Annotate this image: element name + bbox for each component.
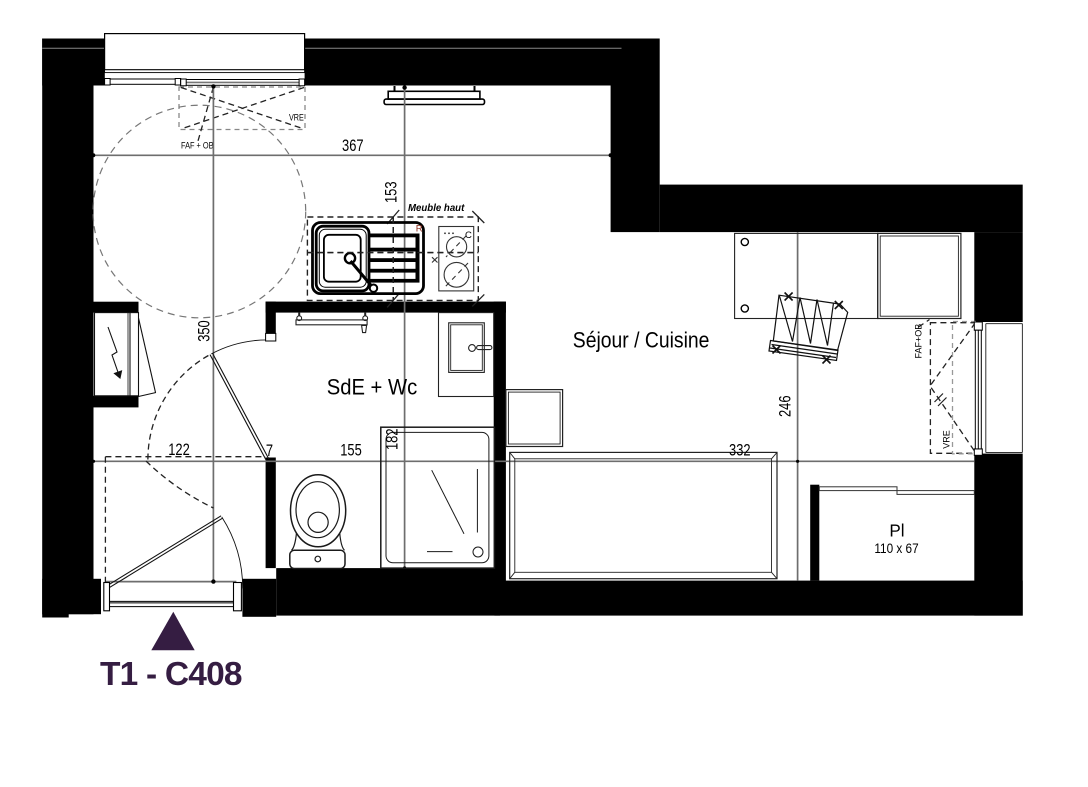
svg-text:153: 153: [382, 181, 401, 203]
svg-text:FAF+OB: FAF+OB: [914, 324, 924, 359]
svg-text:Séjour / Cuisine: Séjour / Cuisine: [573, 328, 710, 352]
svg-text:110 x 67: 110 x 67: [874, 541, 918, 556]
svg-text:122: 122: [168, 440, 190, 459]
svg-text:7: 7: [266, 441, 273, 460]
svg-text:SdE + Wc: SdE + Wc: [327, 376, 417, 400]
svg-text:VRE: VRE: [942, 430, 952, 449]
svg-text:FAF + OB: FAF + OB: [181, 141, 214, 151]
svg-text:332: 332: [729, 441, 751, 460]
svg-text:R: R: [416, 223, 423, 234]
svg-text:C: C: [465, 230, 472, 241]
svg-text:182: 182: [383, 428, 402, 450]
svg-text:350: 350: [195, 320, 214, 342]
svg-text:Meuble haut: Meuble haut: [408, 202, 465, 213]
svg-text:VRE: VRE: [289, 113, 304, 123]
svg-text:367: 367: [342, 136, 364, 155]
svg-text:Pl: Pl: [889, 520, 904, 541]
svg-text:T1 - C408: T1 - C408: [100, 656, 242, 693]
svg-text:155: 155: [340, 441, 362, 460]
svg-text:246: 246: [776, 395, 795, 417]
